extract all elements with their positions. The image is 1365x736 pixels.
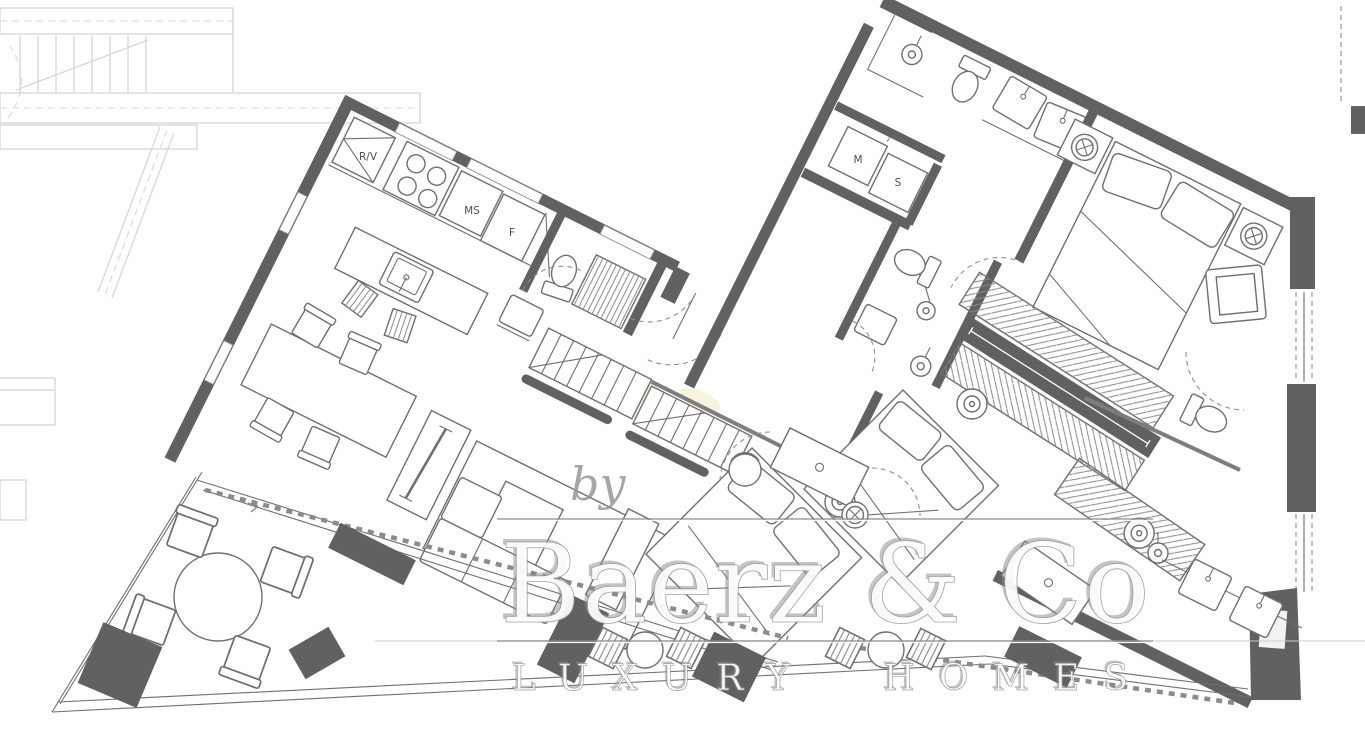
small-sink-icon [499, 294, 545, 337]
round-table-icon [174, 553, 262, 641]
toilet-icon [1179, 393, 1232, 439]
chair-icon [259, 544, 313, 598]
label-s: S [895, 177, 902, 189]
shower-head-icon [898, 31, 930, 68]
toilet-icon [889, 242, 942, 288]
wall-pier [1351, 106, 1365, 134]
chair-icon [164, 504, 218, 558]
window-slot [395, 123, 457, 161]
ceiling-lamp-icon [957, 389, 987, 419]
window-slot [279, 192, 307, 234]
watermark-tagline: LUXURY HOMES [512, 658, 1152, 699]
wall-pier [1287, 384, 1316, 512]
kitchen-island [318, 227, 488, 368]
label-rv: R/V [359, 151, 378, 163]
faint-staircase-icon [8, 36, 148, 118]
label-f: F [509, 227, 515, 239]
planter-icon [289, 627, 346, 679]
wall-pier [1290, 197, 1315, 289]
stairs-upper [520, 327, 651, 433]
shower-head-icon [907, 343, 939, 380]
armchair-icon [1205, 265, 1266, 324]
floor-plan-canvas: R/V MS F M S by Baerz & Co Baerz & Co LU… [0, 0, 1365, 736]
chair-icon [729, 454, 761, 486]
watermark-by: by [570, 457, 626, 511]
chair-icon [218, 634, 272, 688]
window-slot [204, 341, 233, 385]
toilet-icon [945, 55, 991, 108]
plan-labels: R/V MS F M S [359, 151, 902, 239]
floor-plan-page: R/V MS F M S by Baerz & Co Baerz & Co LU… [0, 0, 1365, 736]
label-m: M [853, 154, 862, 166]
window-slot [600, 225, 655, 259]
small-sink-icon [854, 304, 898, 346]
ceiling-lamp-icon [914, 299, 938, 323]
watermark-brand: Baerz & Co [500, 520, 1150, 648]
label-ms: MS [464, 205, 480, 217]
stool-icon [384, 309, 416, 343]
window-slot [467, 159, 543, 204]
